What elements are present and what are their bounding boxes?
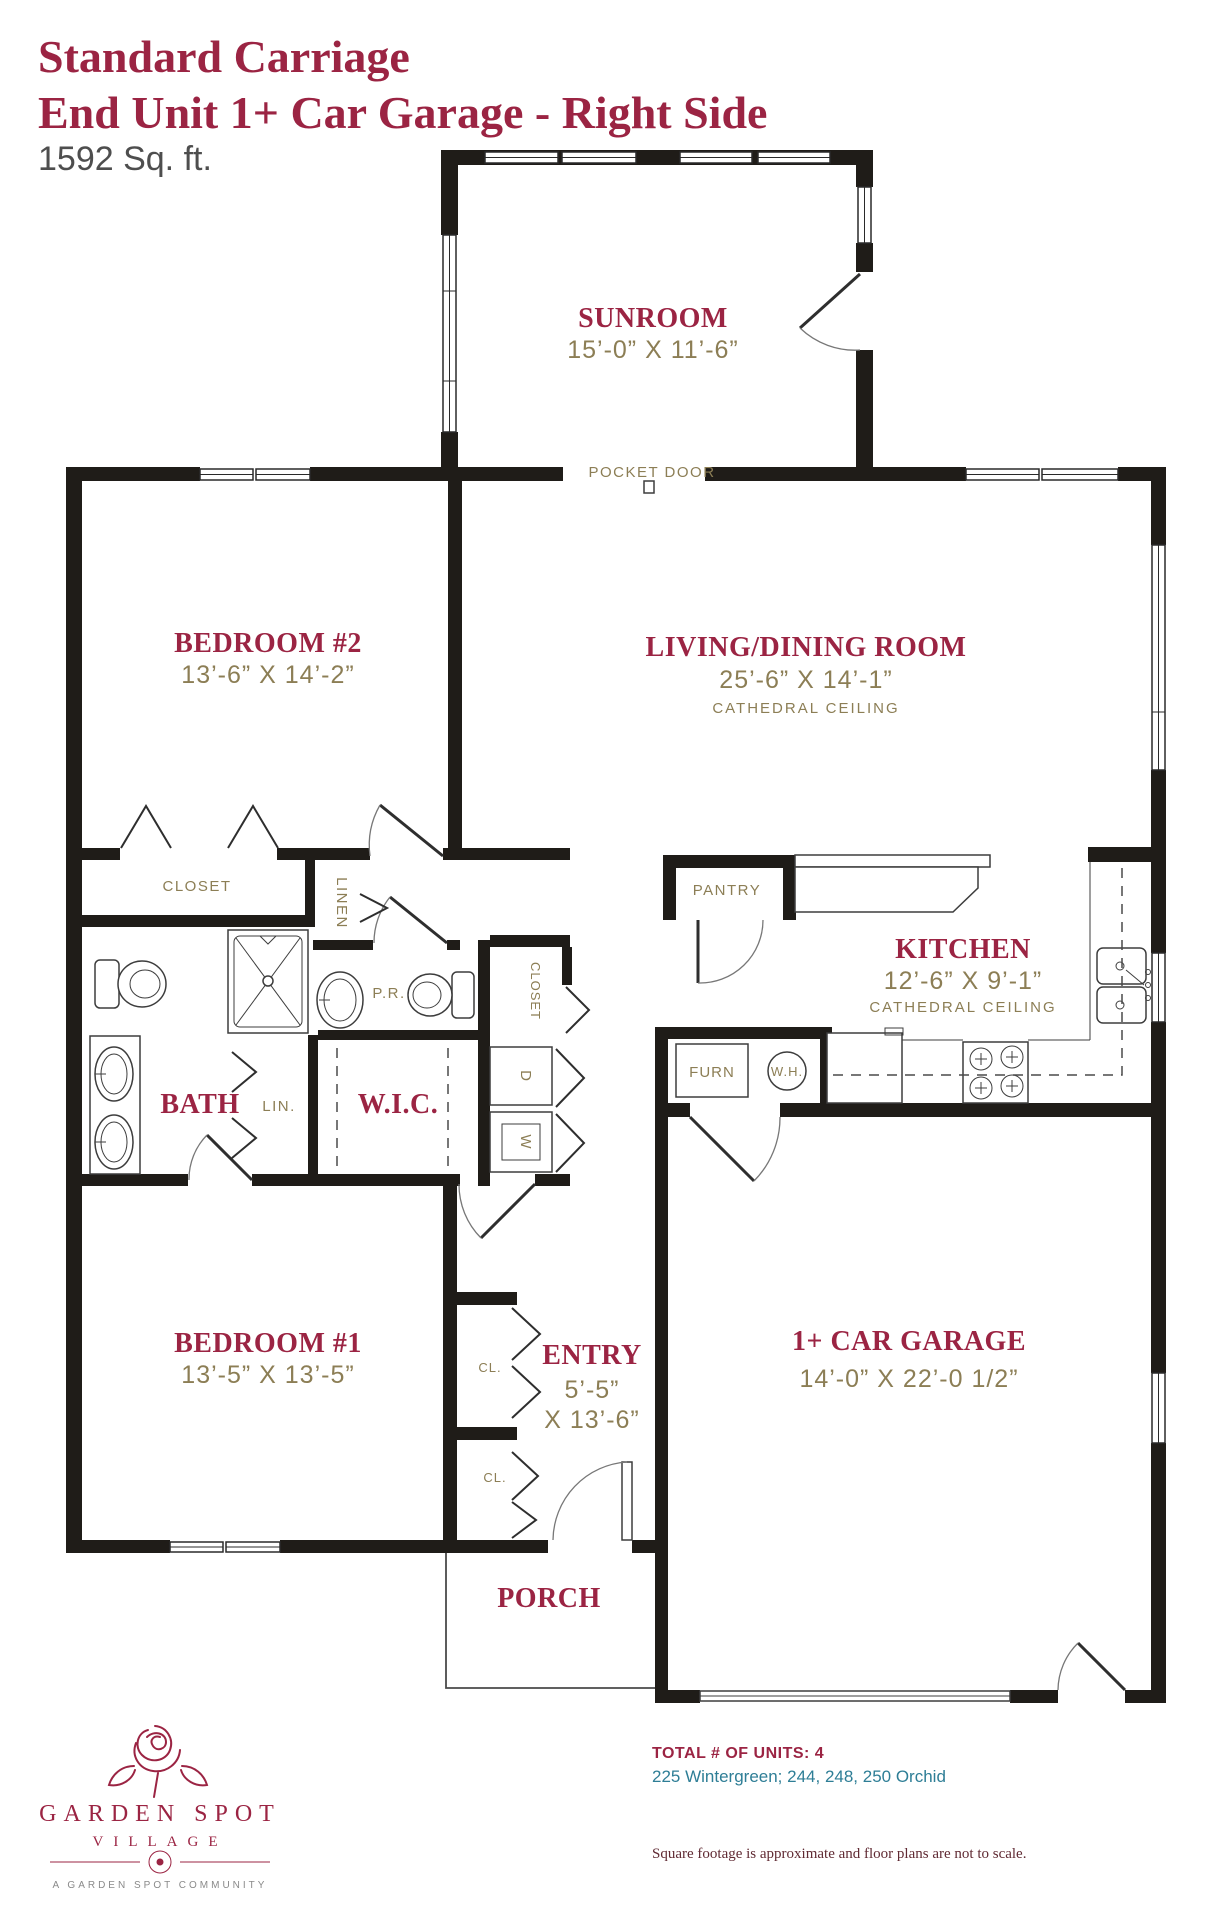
- pocket-door: [644, 481, 654, 493]
- pr-toilet: [408, 972, 474, 1018]
- pocket-door-label: POCKET DOOR: [588, 464, 715, 481]
- pr-sink: [317, 972, 363, 1028]
- window: [1152, 545, 1165, 770]
- total-units: TOTAL # OF UNITS: 4: [652, 1745, 824, 1762]
- brand-rule: [50, 1851, 270, 1873]
- garage-overhead-door: [700, 1691, 1010, 1701]
- window: [858, 187, 871, 243]
- room-dims-entry2: X 13’-6”: [544, 1406, 640, 1434]
- bar-counter: [795, 855, 990, 912]
- closet2-label: CL.: [483, 1470, 506, 1485]
- porch-outline: [446, 1553, 655, 1688]
- bath-door: [189, 1135, 252, 1180]
- room-dims-living: 25’-6” X 14’-1”: [719, 666, 892, 694]
- room-label-garage: 1+ CAR GARAGE: [792, 1326, 1026, 1357]
- room-label-wic: W.I.C.: [358, 1089, 439, 1120]
- window: [966, 469, 1039, 480]
- room-label-kitchen: KITCHEN: [895, 934, 1031, 965]
- window: [200, 469, 253, 480]
- garage-service-door: [1058, 1643, 1125, 1690]
- window: [1152, 1373, 1165, 1443]
- sunroom-door: [800, 274, 860, 350]
- disclaimer-text: Square footage is approximate and floor …: [652, 1846, 1026, 1862]
- room-label-entry: ENTRY: [542, 1340, 642, 1371]
- floor-plan: Standard Carriage End Unit 1+ Car Garage…: [0, 0, 1212, 1920]
- room-label-sunroom: SUNROOM: [578, 303, 728, 334]
- closet-vertical-label: CLOSET: [528, 962, 543, 1020]
- window: [758, 152, 830, 163]
- window: [485, 152, 558, 163]
- window: [680, 152, 752, 163]
- room-dims-entry1: 5’-5”: [564, 1376, 619, 1404]
- hall-closet-bifold: [566, 987, 589, 1033]
- room-label-bedroom2: BEDROOM #2: [174, 628, 362, 659]
- room-dims-kitchen: 12’-6” X 9’-1”: [884, 967, 1043, 995]
- garage-entry-door: [690, 1117, 780, 1181]
- unit-addresses: 225 Wintergreen; 244, 248, 250 Orchid: [652, 1767, 946, 1786]
- hall-closet-label: CLOSET: [162, 878, 231, 895]
- bedroom2-closet-bifold: [121, 806, 278, 848]
- furnace-label: FURN: [689, 1064, 735, 1081]
- room-note-living: CATHEDRAL CEILING: [712, 700, 899, 717]
- room-label-bath: BATH: [160, 1089, 239, 1120]
- window: [443, 235, 456, 432]
- window: [1152, 953, 1165, 1022]
- front-door: [553, 1462, 632, 1540]
- window: [1042, 469, 1118, 480]
- water-heater-label: W.H.: [771, 1064, 803, 1079]
- powder-room-door: [374, 897, 447, 943]
- window: [226, 1542, 280, 1552]
- closet1-label: CL.: [478, 1360, 501, 1375]
- page-title-line2: End Unit 1+ Car Garage - Right Side: [38, 87, 767, 138]
- room-dims-sunroom: 15’-0” X 11’-6”: [567, 336, 739, 364]
- window: [562, 152, 636, 163]
- rose-icon: [109, 1726, 207, 1797]
- pantry-door: [698, 920, 763, 983]
- floor-plan-page: Standard Carriage End Unit 1+ Car Garage…: [0, 0, 1212, 1920]
- shower: [228, 930, 308, 1033]
- powder-room-label: P.R.: [372, 985, 405, 1002]
- room-dims-garage: 14’-0” X 22’-0 1/2”: [799, 1365, 1018, 1393]
- brand-name: GARDEN SPOT: [39, 1801, 281, 1827]
- washer-label: W: [517, 1134, 534, 1149]
- stove: [963, 1042, 1028, 1103]
- room-label-bedroom1: BEDROOM #1: [174, 1328, 362, 1359]
- bedroom2-door: [369, 805, 443, 856]
- entry-closet1-bifold: [512, 1308, 540, 1418]
- square-footage: 1592 Sq. ft.: [38, 140, 212, 178]
- pantry-label: PANTRY: [693, 882, 761, 899]
- brand-tagline: A GARDEN SPOT COMMUNITY: [53, 1880, 268, 1891]
- linen-label: LINEN: [333, 877, 350, 929]
- bedroom1-door: [459, 1184, 535, 1238]
- kitchen-sink: [1097, 948, 1151, 1023]
- vanity-double-sink: [90, 1036, 140, 1174]
- window: [170, 1542, 223, 1552]
- footer: GARDEN SPOT VILLAGE A GARDEN SPOT COMMUN…: [39, 1726, 1026, 1891]
- page-title-line1: Standard Carriage: [38, 31, 410, 82]
- room-label-porch: PORCH: [497, 1583, 601, 1614]
- lin-label: LIN.: [262, 1098, 296, 1115]
- window: [256, 469, 310, 480]
- dryer-label: D: [517, 1070, 534, 1082]
- brand-subname: VILLAGE: [93, 1834, 228, 1850]
- room-dims-bedroom1: 13’-5” X 13’-5”: [181, 1361, 354, 1389]
- room-label-living: LIVING/DINING ROOM: [646, 632, 967, 663]
- refrigerator: [827, 1028, 903, 1103]
- entry-closet2-bifold: [512, 1452, 538, 1538]
- room-dims-bedroom2: 13’-6” X 14’-2”: [181, 661, 354, 689]
- toilet: [95, 960, 166, 1008]
- room-note-kitchen: CATHEDRAL CEILING: [869, 999, 1056, 1016]
- walls: [66, 150, 1166, 1703]
- laundry-bifold: [556, 1049, 584, 1172]
